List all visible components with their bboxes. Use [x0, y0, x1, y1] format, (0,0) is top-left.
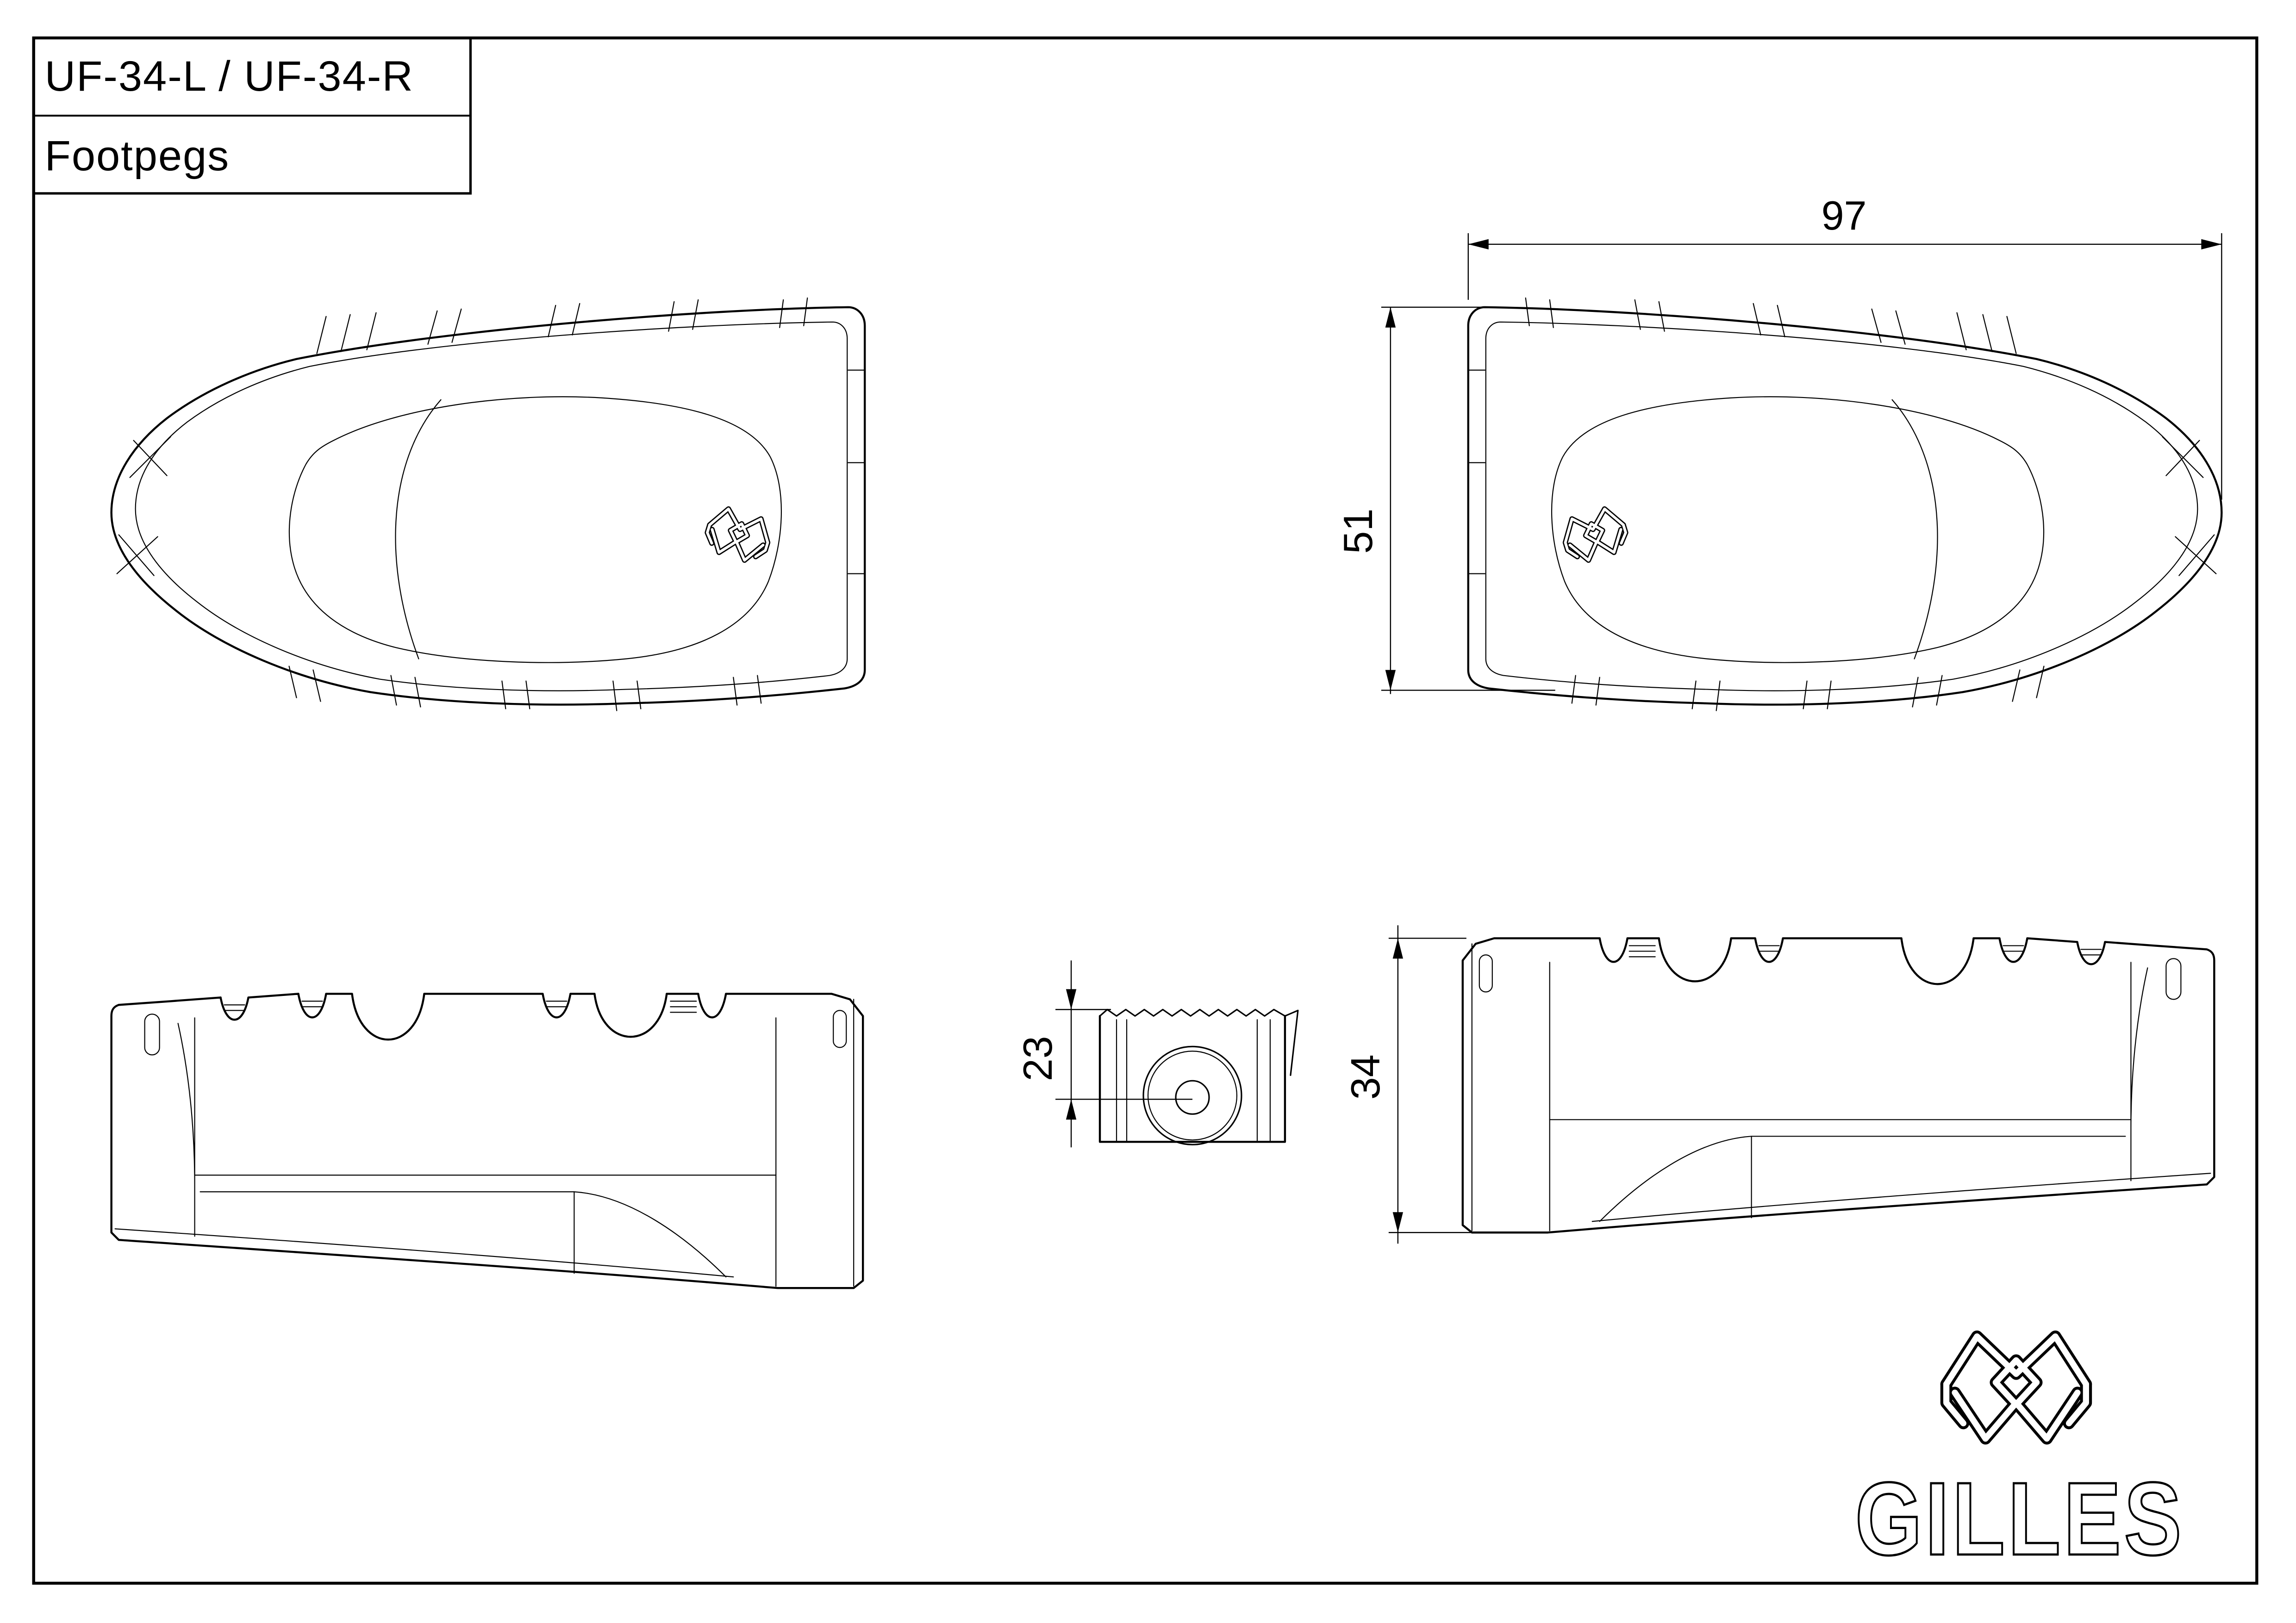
dim-23-text: 23 [1015, 1036, 1061, 1081]
technical-drawing-canvas: UF-34-L / UF-34-R Footpegs 97 51 [0, 0, 2296, 1623]
brand-name-text: GILLES [1855, 1461, 2185, 1577]
part-number-text: UF-34-L / UF-34-R [45, 53, 414, 100]
drawing-sheet: UF-34-L / UF-34-R Footpegs 97 51 [0, 0, 2296, 1623]
part-name-text: Footpegs [45, 132, 230, 180]
dim-97-text: 97 [1822, 193, 1867, 238]
dim-34-text: 34 [1342, 1054, 1388, 1100]
dim-51-text: 51 [1335, 509, 1381, 554]
